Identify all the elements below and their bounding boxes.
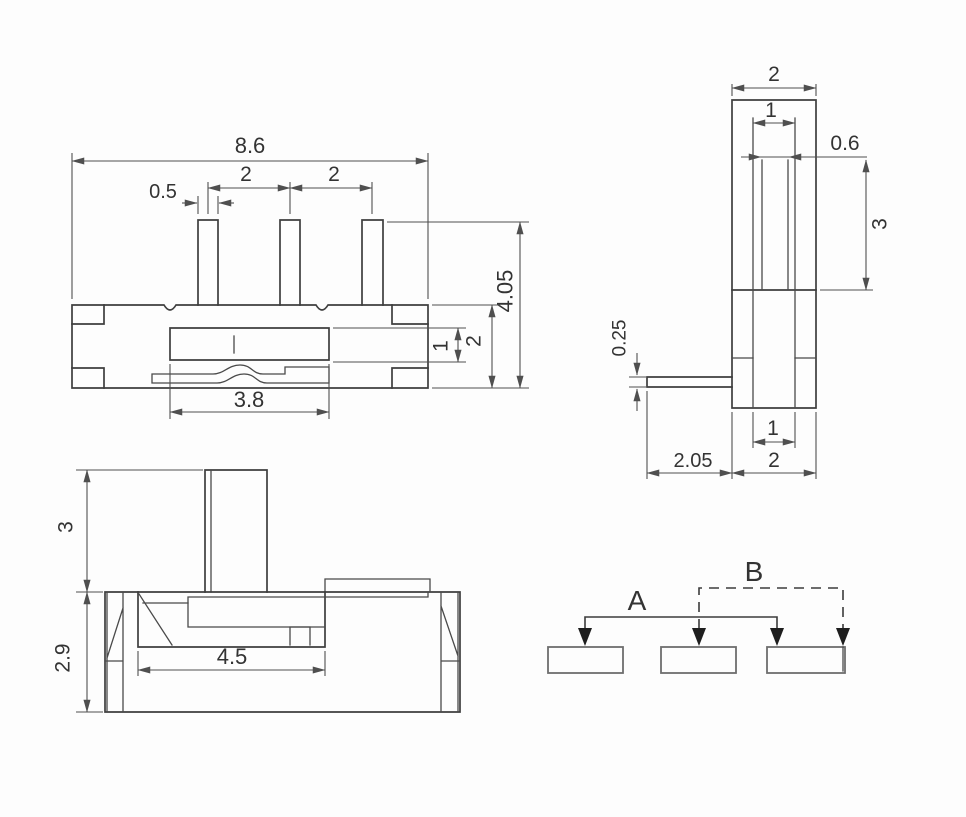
- dim-body-depth: 2.9: [52, 643, 75, 672]
- side-body-outline: [732, 290, 816, 408]
- side-view: 2 1 0.6 3 0.25 2.05 1 2: [610, 63, 892, 479]
- section-knob: [205, 470, 267, 592]
- position-a-label: A: [628, 585, 647, 616]
- dim-top-width: 2: [768, 63, 780, 86]
- contact-arrow-1: [578, 628, 592, 646]
- dim-total-height: 4.05: [493, 270, 518, 313]
- dim-opening-width: 4.5: [217, 644, 248, 669]
- dim-pin-thickness: 0.25: [610, 320, 631, 357]
- slide-switch-dimension-drawing: 8.6 2 2 0.5 4.05 1 2 3.8: [0, 0, 966, 817]
- front-terminal-pins: [198, 220, 383, 305]
- section-opening: [138, 592, 325, 647]
- dim-slot-height: 1: [430, 340, 453, 352]
- dim-slot-width: 3.8: [234, 387, 265, 412]
- dim-overall-width: 8.6: [235, 133, 266, 158]
- ext-lines-slot-height: [333, 305, 500, 362]
- dim-stem-width: 1: [765, 99, 777, 122]
- dim-section-knob-height: 3: [55, 521, 78, 533]
- section-left-seam: [105, 592, 123, 712]
- circuit-schematic: A B: [548, 556, 850, 673]
- dim-knob-height: 3: [869, 218, 892, 230]
- front-slot-window: [170, 328, 329, 360]
- dim-body-height: 2: [463, 335, 486, 347]
- dim-base-width: 2: [768, 449, 780, 472]
- front-view: 8.6 2 2 0.5 4.05 1 2 3.8: [72, 133, 529, 419]
- section-view: 3 2.9 4.5: [52, 470, 461, 712]
- side-stem-lines: [753, 118, 795, 408]
- section-opening-ramp: [139, 594, 188, 645]
- side-pin: [647, 377, 732, 387]
- contact-arrow-4: [836, 628, 850, 646]
- side-knob-outline: [732, 100, 816, 290]
- section-right-seam: [441, 592, 460, 712]
- section-contact-block: [290, 627, 310, 645]
- dim-pin-length: 2.05: [674, 450, 713, 472]
- dim-pin-width: 0.5: [149, 181, 177, 203]
- ext-lines-pin-pitch: [208, 182, 372, 214]
- terminal-pad-3: [767, 647, 845, 673]
- contact-arrow-2: [692, 628, 706, 646]
- terminal-pad-2: [661, 647, 736, 673]
- dim-pin-pitch-left: 2: [240, 163, 252, 186]
- terminal-pad-1: [548, 647, 623, 673]
- dim-pin-pitch-right: 2: [328, 163, 340, 186]
- position-a-connector: [585, 617, 777, 629]
- section-body-outline: [105, 592, 460, 712]
- dim-base-slot-width: 1: [767, 417, 779, 440]
- position-b-label: B: [745, 556, 764, 587]
- section-cover-tab: [325, 579, 430, 592]
- section-slider-block: [188, 597, 325, 627]
- ext-lines-body-depth: [76, 592, 103, 712]
- side-slot-lines: [762, 160, 788, 290]
- position-b-connector: [699, 588, 843, 629]
- front-lever-strip: [152, 365, 329, 383]
- dim-side-slot-width: 0.6: [830, 132, 859, 155]
- contact-arrow-3: [770, 628, 784, 646]
- technical-drawing-page: 8.6 2 2 0.5 4.05 1 2 3.8: [0, 0, 966, 817]
